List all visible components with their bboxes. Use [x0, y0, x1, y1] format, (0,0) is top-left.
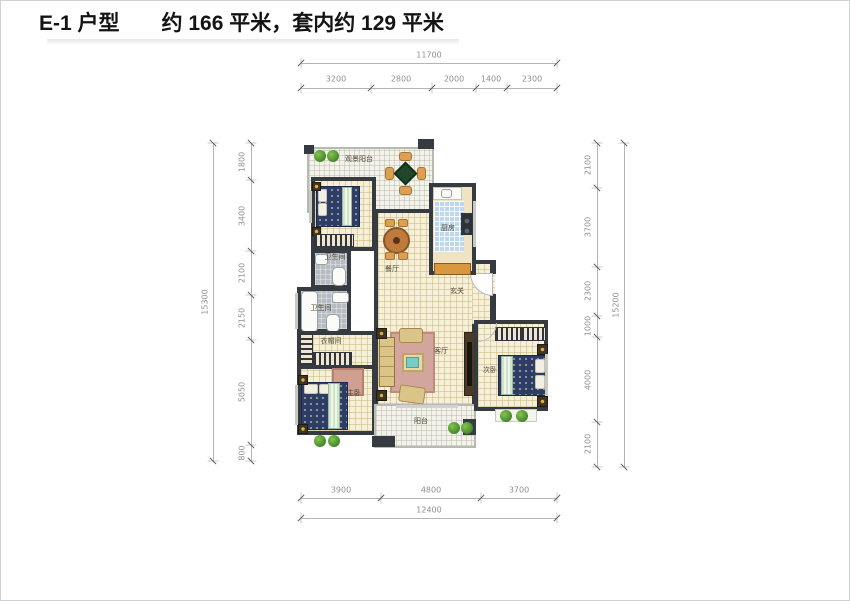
wall-post [304, 145, 314, 154]
window [473, 201, 476, 247]
window [295, 385, 298, 425]
window [545, 354, 548, 396]
unit-name: E-1 户型 [39, 12, 120, 35]
dim-tick [381, 493, 382, 504]
dim-left-seg: 2150 [238, 308, 247, 328]
dim-top-total: 11700 [416, 51, 441, 60]
dim-tick [557, 83, 558, 94]
plant-icon [448, 422, 460, 434]
dim-tick [592, 467, 603, 468]
dim-bottom-total: 12400 [416, 506, 441, 515]
dim-line-left-segments [251, 143, 252, 461]
dim-top-seg: 1400 [481, 75, 501, 84]
entry-console [434, 263, 471, 275]
dim-top-seg: 2300 [522, 75, 542, 84]
nightstand [298, 375, 308, 385]
dim-line-left-total [213, 143, 214, 461]
plant-icon [461, 422, 473, 434]
dim-right-total: 15200 [612, 292, 621, 317]
plant-icon [328, 435, 340, 447]
dining-chair [385, 252, 395, 260]
dim-tick [619, 467, 630, 468]
dim-top-seg: 3200 [326, 75, 346, 84]
nightstand [298, 424, 308, 434]
dim-left-seg: 2100 [238, 263, 247, 283]
dim-line-right-total [624, 143, 625, 467]
dim-bottom-seg: 3700 [509, 486, 529, 495]
dim-tick [208, 143, 219, 144]
room-label-dining: 餐厅 [385, 264, 399, 274]
plant-icon [314, 435, 326, 447]
dim-left-seg: 5050 [238, 382, 247, 402]
sofa [379, 337, 395, 387]
dim-tick [557, 493, 558, 504]
dim-line-top-total [301, 63, 557, 64]
dim-tick [592, 267, 603, 268]
dining-chair [385, 219, 395, 227]
plant-icon [516, 410, 528, 422]
dim-right-seg: 4000 [584, 370, 593, 390]
wardrobe [495, 327, 521, 341]
outdoor-chair [417, 167, 426, 180]
page-title: E-1 户型约 166 平米，套内约 129 平米 [39, 7, 444, 37]
side-table [376, 328, 387, 339]
room-label-second-bedroom: 次卧 [483, 365, 497, 375]
plant-icon [314, 150, 326, 162]
dim-tick [592, 316, 603, 317]
dim-tick [592, 337, 603, 338]
plant-icon [500, 410, 512, 422]
dim-tick [246, 340, 257, 341]
armchair [399, 328, 423, 343]
room-label-view-balcony: 观景阳台 [345, 154, 373, 164]
dining-centerpiece [393, 237, 400, 244]
dim-tick [301, 513, 302, 524]
dim-tick [208, 461, 219, 462]
dim-left-seg: 3400 [238, 206, 247, 226]
outdoor-chair [399, 152, 412, 161]
dim-line-right-segments [597, 143, 598, 467]
dim-tick [432, 83, 433, 94]
pillow [304, 384, 318, 394]
coffee-table-top [406, 357, 419, 368]
room-label-bath-upper: 卫生间 [325, 252, 346, 262]
dim-tick [619, 143, 630, 144]
floorplan-page: E-1 户型约 166 平米，套内约 129 平米 11700 3200 280… [0, 0, 850, 601]
bed-runner [328, 383, 340, 429]
pillow [535, 359, 545, 373]
wall-post [418, 139, 434, 149]
dim-left-seg: 1800 [238, 152, 247, 172]
bed-runner [342, 187, 352, 226]
room-label-entry: 玄关 [450, 286, 464, 296]
dining-chair [398, 252, 408, 260]
room-label-cloakroom: 衣帽间 [321, 336, 342, 346]
room-label-kitchen: 厨房 [441, 223, 455, 233]
dim-tick [481, 493, 482, 504]
dim-tick [246, 445, 257, 446]
room-label-master-bedroom: 主卧 [347, 388, 361, 398]
dim-right-seg: 2100 [584, 434, 593, 454]
pillow [535, 375, 545, 389]
dim-right-seg: 2100 [584, 155, 593, 175]
dim-tick [246, 251, 257, 252]
dim-top-seg: 2000 [444, 75, 464, 84]
dim-right-seg: 2300 [584, 281, 593, 301]
room-label-bath-lower: 卫生间 [311, 303, 332, 313]
side-table [376, 390, 387, 401]
armchair [398, 384, 426, 404]
outdoor-chair [385, 167, 394, 180]
nightstand [537, 396, 548, 407]
plant-icon [327, 150, 339, 162]
dim-tick [371, 83, 372, 94]
dim-top-seg: 2800 [391, 75, 411, 84]
room-label-balcony: 阳台 [414, 416, 428, 426]
dim-right-seg: 3700 [584, 217, 593, 237]
area-text: 约 166 平米，套内约 129 平米 [162, 12, 444, 35]
dim-tick [301, 83, 302, 94]
entry-wall [490, 260, 496, 274]
wardrobe [313, 352, 352, 366]
balcony-glass-door [396, 405, 458, 408]
bed-runner [501, 356, 513, 395]
stove [461, 213, 472, 235]
dim-bottom-seg: 4800 [421, 486, 441, 495]
tv-screen [467, 342, 472, 386]
nightstand [312, 182, 321, 191]
room-label-living: 客厅 [434, 346, 448, 356]
dim-tick [301, 493, 302, 504]
wardrobe [314, 234, 354, 247]
dim-right-seg: 1000 [584, 316, 593, 336]
dim-tick [592, 143, 603, 144]
wall-post [372, 436, 395, 447]
wardrobe [521, 327, 546, 341]
toilet [326, 314, 340, 332]
dim-tick [557, 58, 558, 69]
title-shadow [47, 39, 459, 45]
dim-tick [246, 461, 257, 462]
dim-tick [246, 295, 257, 296]
dim-line-bottom-total [301, 518, 557, 519]
window [309, 191, 312, 223]
dim-left-total: 15300 [201, 289, 210, 314]
dim-tick [592, 422, 603, 423]
dim-tick [557, 513, 558, 524]
dim-tick [301, 58, 302, 69]
dim-tick [592, 188, 603, 189]
outdoor-chair [399, 186, 412, 195]
dim-tick [246, 180, 257, 181]
dim-tick [476, 83, 477, 94]
dim-tick [246, 143, 257, 144]
dim-left-seg: 800 [238, 445, 247, 460]
window [295, 293, 298, 329]
sink [332, 292, 349, 303]
dim-bottom-seg: 3900 [331, 486, 351, 495]
dim-line-bottom-segments [301, 498, 557, 499]
kitchen-sink [441, 189, 452, 198]
dim-tick [507, 83, 508, 94]
dining-chair [398, 219, 408, 227]
toilet [332, 267, 346, 286]
pillow [318, 203, 327, 216]
